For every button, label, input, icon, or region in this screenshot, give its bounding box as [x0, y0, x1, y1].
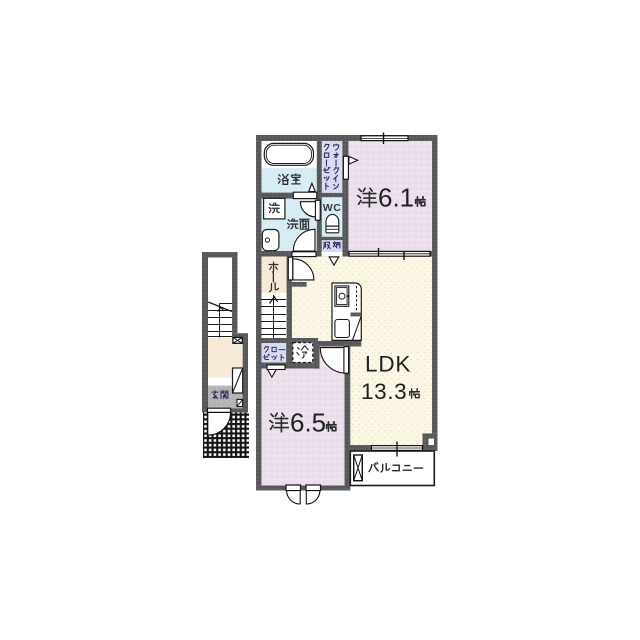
svg-text:13.3: 13.3 — [361, 379, 407, 404]
svg-text:6.1: 6.1 — [378, 183, 414, 213]
svg-text:WC: WC — [323, 202, 342, 214]
svg-text:LDK: LDK — [365, 351, 411, 376]
svg-text:6.5: 6.5 — [290, 408, 326, 438]
